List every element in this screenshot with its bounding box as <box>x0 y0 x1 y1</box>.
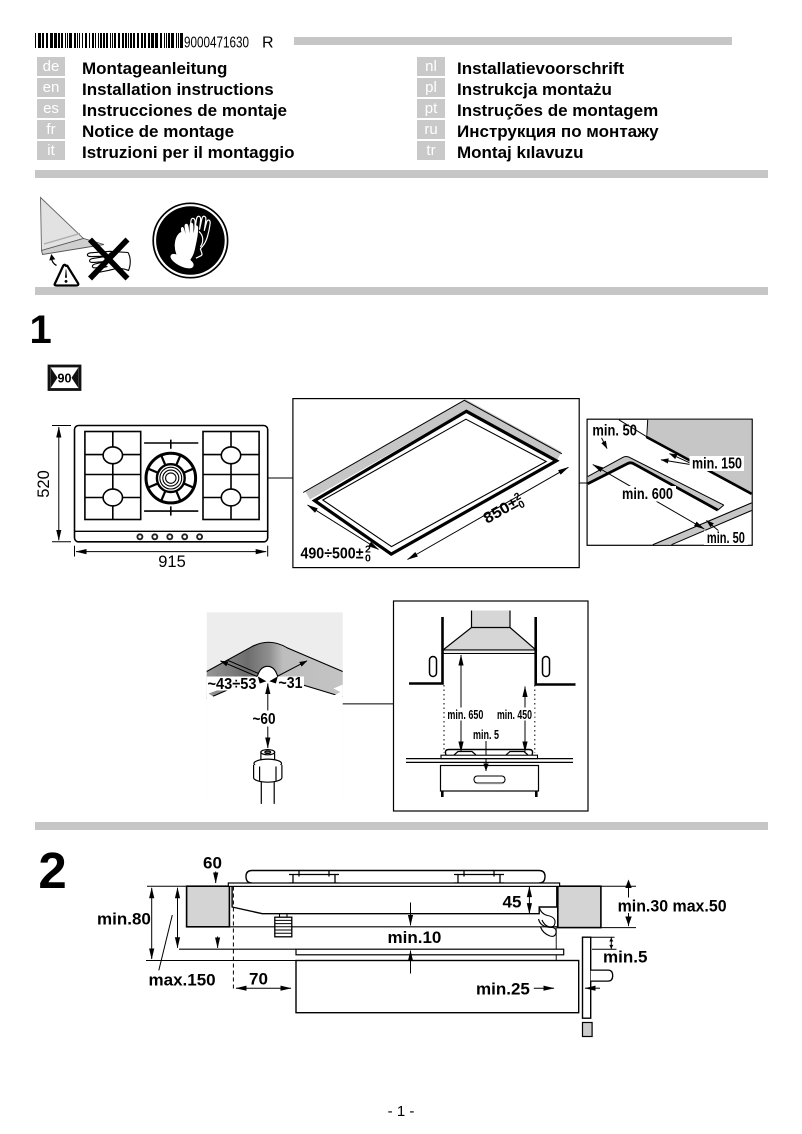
svg-text:490÷500±: 490÷500± <box>301 546 364 563</box>
svg-text:min. 50: min. 50 <box>707 530 745 547</box>
svg-text:min.5: min.5 <box>603 948 647 967</box>
svg-text:min.30 max.50: min.30 max.50 <box>618 897 727 916</box>
svg-text:min. 450: min. 450 <box>497 707 532 722</box>
svg-text:~60: ~60 <box>253 711 276 728</box>
svg-text:min. 150: min. 150 <box>692 456 742 473</box>
svg-text:9000471630: 9000471630 <box>184 35 249 52</box>
svg-text:min. 600: min. 600 <box>622 486 673 503</box>
svg-text:max.150: max.150 <box>149 971 216 990</box>
svg-text:min. 50: min. 50 <box>592 423 637 440</box>
svg-text:min.25: min.25 <box>476 980 530 999</box>
svg-text:915: 915 <box>158 553 186 571</box>
svg-text:45: 45 <box>503 893 522 912</box>
svg-text:R: R <box>262 35 274 52</box>
svg-text:70: 70 <box>249 970 268 989</box>
svg-text:min. 5: min. 5 <box>473 727 499 742</box>
svg-text:60: 60 <box>203 854 222 873</box>
svg-text:min.80: min.80 <box>97 910 151 929</box>
svg-text:min.10: min.10 <box>388 928 442 947</box>
svg-text:min. 650: min. 650 <box>447 707 483 722</box>
svg-text:90: 90 <box>58 370 72 385</box>
svg-text:~43÷53: ~43÷53 <box>208 676 257 693</box>
svg-text:520: 520 <box>35 470 53 498</box>
svg-text:0: 0 <box>365 553 371 565</box>
svg-text:~31: ~31 <box>279 675 303 692</box>
